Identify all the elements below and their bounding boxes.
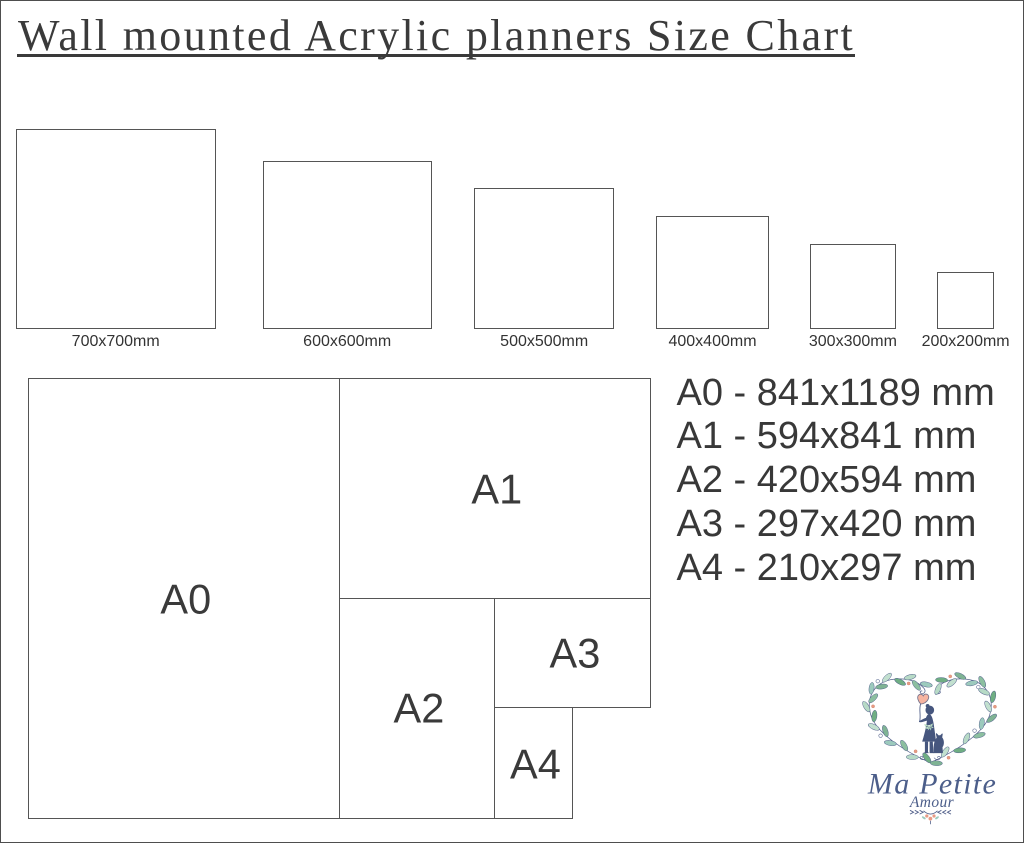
svg-text:Amour: Amour bbox=[909, 794, 955, 811]
